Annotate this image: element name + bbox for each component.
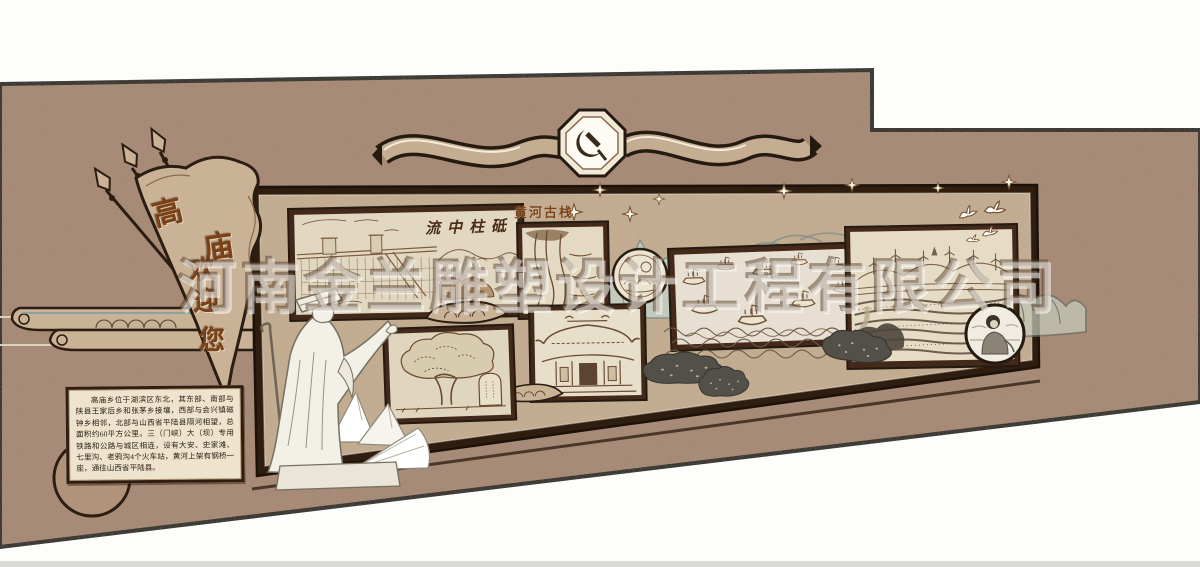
panel-tree [383, 324, 516, 423]
medallion-scenery [613, 249, 667, 303]
medallion-person [966, 305, 1024, 363]
scene-svg [0, 0, 1200, 567]
decor-circle [54, 440, 130, 516]
cultural-wall-rendering: 高 庙 欢 迎 您 流中柱砥 黄河古栈 高庙乡位于湖滨区东北，其东部、南部与陕县… [0, 0, 1200, 567]
party-emblem-icon [559, 110, 625, 176]
